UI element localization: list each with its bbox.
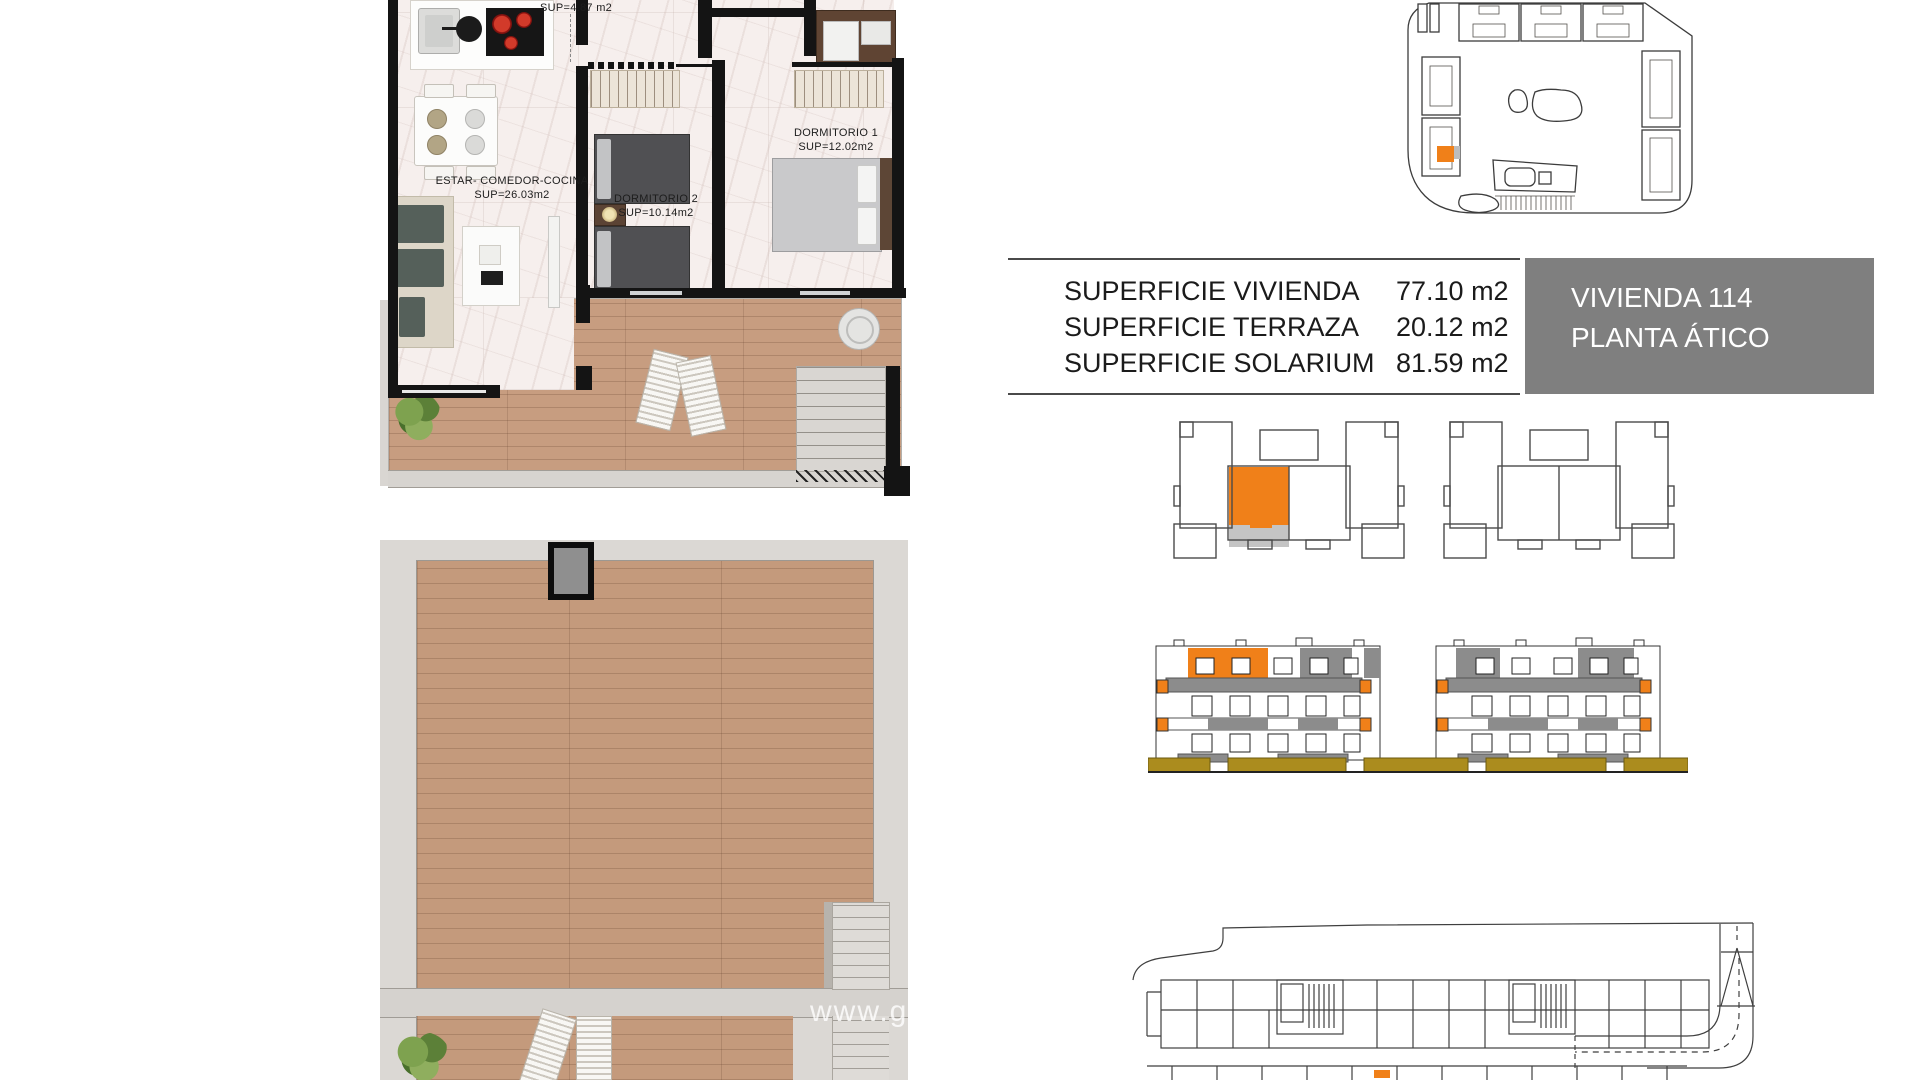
wardrobe-bedroom2 (590, 70, 680, 108)
wall (712, 60, 725, 292)
highlighted-unit-site (1437, 146, 1454, 162)
solarium-floorplan: www.go (380, 540, 908, 1080)
wall (884, 466, 910, 496)
chair (466, 84, 496, 98)
ramp-arrow (1717, 948, 1755, 1006)
wall (676, 64, 712, 67)
highlighted-storage (1374, 1070, 1390, 1078)
wall (886, 366, 900, 468)
bathroom-area-label: SUP=4.87 m2 (540, 1, 612, 15)
living-room-sup: SUP=26.03m2 (432, 188, 592, 202)
building-elevations (1148, 636, 1688, 782)
surface-label: SUPERFICIE TERRAZA (1064, 309, 1396, 345)
table-row: SUPERFICIE VIVIENDA 77.10 m2 (1064, 273, 1520, 309)
double-bed (772, 158, 882, 252)
wall (576, 288, 906, 298)
table-row: SUPERFICIE SOLARIUM 81.59 m2 (1064, 345, 1520, 381)
planter-kidney (1459, 194, 1499, 212)
deck-hatch (1495, 196, 1575, 210)
watermark: www.go (810, 995, 908, 1029)
ramp-centerline (1575, 958, 1739, 1052)
bed-headboard (880, 158, 892, 250)
bedroom2-sup: SUP=10.14m2 (598, 206, 714, 220)
skylight (548, 542, 594, 600)
sun-lounger (576, 1016, 612, 1080)
bedroom1-sup: SUP=12.02m2 (776, 140, 896, 154)
living-room-label: ESTAR- COMEDOR-COCINA SUP=26.03m2 (432, 174, 592, 202)
coffee-table (462, 226, 520, 306)
apartment-floorplan: SUP=4.87 m2 ESTAR- COMEDOR-COCINA SUP=26… (380, 0, 908, 537)
living-room-name: ESTAR- COMEDOR-COCINA (432, 174, 592, 188)
highlighted-terrace-key (1229, 525, 1289, 547)
wall (576, 366, 592, 390)
wall (792, 62, 892, 67)
kitchen-sink (418, 8, 460, 54)
key-plan-highlighted (1174, 422, 1404, 558)
bedroom2-label: DORMITORIO 2 SUP=10.14m2 (598, 192, 714, 220)
wall (704, 8, 804, 17)
bedroom1-label: DORMITORIO 1 SUP=12.02m2 (776, 126, 896, 154)
surface-value: 77.10 m2 (1396, 273, 1509, 309)
unit-floor: PLANTA ÁTICO (1571, 318, 1874, 358)
surface-label: SUPERFICIE SOLARIUM (1064, 345, 1396, 381)
round-side-table (838, 308, 880, 350)
bedroom1-name: DORMITORIO 1 (776, 126, 896, 140)
plant (394, 392, 442, 444)
chair (424, 84, 454, 98)
surface-value: 20.12 m2 (1396, 309, 1509, 345)
balcony-band (1166, 678, 1362, 692)
plant (395, 1032, 451, 1080)
wall (892, 58, 904, 298)
single-bed (594, 226, 690, 292)
frying-pan (456, 16, 482, 42)
wall (804, 0, 816, 56)
parking-plan (1127, 918, 1832, 1080)
bedroom2-name: DORMITORIO 2 (598, 192, 714, 206)
key-plan-plain (1444, 422, 1674, 558)
dining-table (414, 96, 498, 166)
key-plans (1172, 410, 1682, 580)
boundary-curve (1133, 923, 1753, 980)
terrace-window-wall (388, 385, 500, 398)
surface-value: 81.59 m2 (1396, 345, 1509, 381)
utility-cabinet (816, 10, 896, 64)
table-row: SUPERFICIE TERRAZA 20.12 m2 (1064, 309, 1520, 345)
site-buildings-right (1642, 51, 1680, 200)
plan-sheet: SUP=4.87 m2 ESTAR- COMEDOR-COCINA SUP=26… (0, 0, 1920, 1080)
wardrobe-bedroom1 (794, 70, 884, 108)
solarium-stairs (832, 902, 890, 990)
stair-core (1509, 980, 1575, 1034)
surface-table: SUPERFICIE VIVIENDA 77.10 m2 SUPERFICIE … (1008, 258, 1520, 395)
closet-dashed-wall (588, 62, 676, 69)
surface-label: SUPERFICIE VIVIENDA (1064, 273, 1396, 309)
pool-small (1509, 90, 1528, 113)
unit-number: VIVIENDA 114 (1571, 278, 1874, 318)
unit-badge: VIVIENDA 114 PLANTA ÁTICO (1525, 258, 1874, 394)
wall (388, 0, 398, 388)
site-buildings-left (1422, 57, 1460, 176)
sofa (390, 196, 454, 348)
elevation-left (1156, 638, 1380, 762)
storage-block (1161, 980, 1709, 1048)
elevation-right (1436, 638, 1660, 762)
site-plan (1395, 0, 1725, 232)
label-leader-line (570, 14, 571, 62)
tv-sideboard (548, 216, 560, 308)
stairs (796, 366, 886, 472)
stair-core (1277, 980, 1343, 1034)
stair-wall (824, 902, 832, 988)
pool-large (1532, 89, 1581, 121)
plan-edge-strip (380, 300, 388, 486)
site-buildings-top (1459, 4, 1643, 41)
cooktop (486, 8, 544, 56)
stair-hatch (796, 470, 884, 482)
solarium-wood-deck (416, 560, 874, 990)
